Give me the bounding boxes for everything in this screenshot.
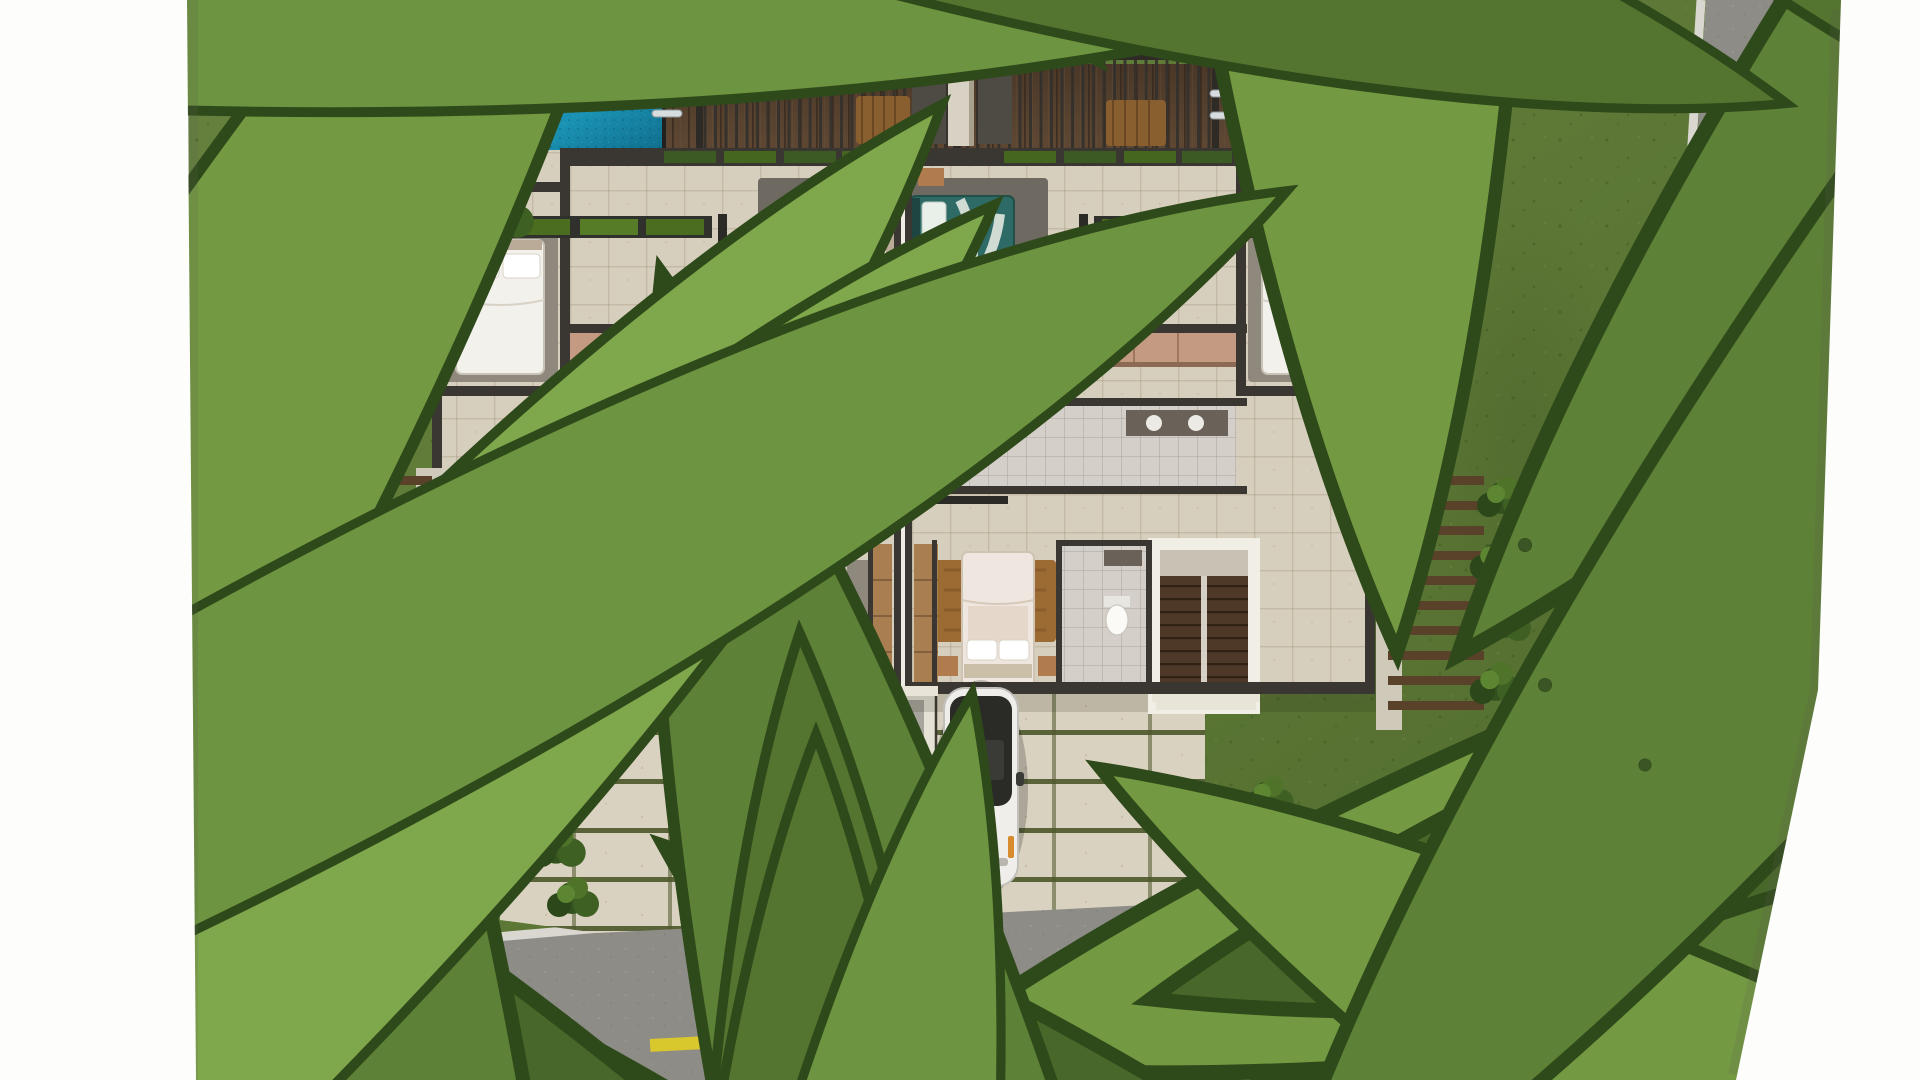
nightstand — [1038, 656, 1058, 676]
vanity — [1126, 410, 1228, 436]
nightstand — [938, 656, 958, 676]
scene-canvas — [0, 0, 1920, 1080]
entry-bathroom — [1062, 546, 1146, 682]
nightstand — [918, 168, 944, 186]
margin-left — [0, 0, 196, 1080]
bed-front-right — [962, 552, 1034, 690]
outdoor-table-right — [1106, 100, 1166, 146]
site-plan-render — [0, 0, 1920, 1080]
toilet — [1104, 596, 1130, 635]
